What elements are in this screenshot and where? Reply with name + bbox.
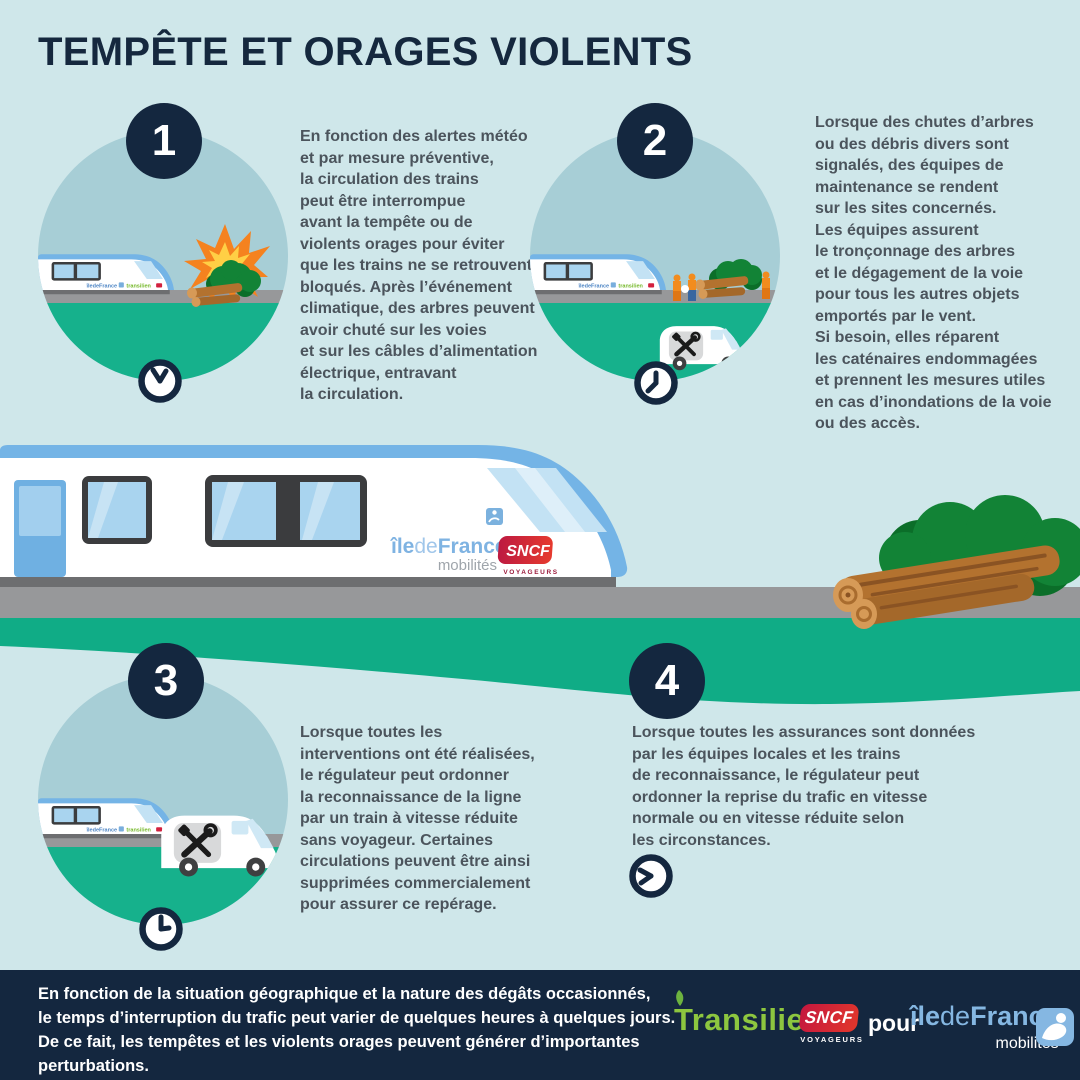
- page-title: TEMPÊTE ET ORAGES VIOLENTS: [38, 30, 693, 75]
- footer-text: En fonction de la situation géographique…: [38, 982, 675, 1078]
- leaf-icon: [671, 989, 687, 1007]
- accessibility-icon: [486, 508, 503, 525]
- clock-icon: [138, 906, 184, 952]
- train-window: [205, 475, 367, 547]
- clock-icon: [628, 853, 674, 899]
- step-2-number-badge: 2: [617, 103, 693, 179]
- train-window: [82, 476, 152, 544]
- idf-mobilites-icon: [1036, 1008, 1074, 1046]
- clock-icon: [633, 360, 679, 406]
- storm-infographic: îledeFrance transilien TEM: [0, 0, 1080, 1080]
- svg-text:VOYAGEURS: VOYAGEURS: [503, 569, 558, 576]
- step-4-number-badge: 4: [629, 643, 705, 719]
- step-1-number-badge: 1: [126, 103, 202, 179]
- idf-mobilites-logo: îledeFrance: [390, 535, 507, 558]
- sncf-voyageurs-logo: SNCF VOYAGEURS: [497, 536, 558, 576]
- svg-text:SNCF: SNCF: [506, 543, 551, 560]
- step-3-number-badge: 3: [128, 643, 204, 719]
- sncf-voyageurs-logo: SNCF VOYAGEURS: [800, 1004, 864, 1044]
- footer: En fonction de la situation géographique…: [0, 970, 1080, 1080]
- step-4-text: Lorsque toutes les assurances sont donné…: [632, 722, 975, 851]
- step-2-text: Lorsque des chutes d’arbres ou des débri…: [815, 112, 1052, 435]
- train-icon: îledeFrance mobilités SNCF VOYAGEURS: [0, 445, 627, 589]
- step-1-text: En fonction des alertes météo et par mes…: [300, 126, 537, 406]
- clock-icon: [137, 358, 183, 404]
- step-3-text: Lorsque toutes les interventions ont été…: [300, 722, 535, 916]
- idf-mobilites-sub: mobilités: [438, 557, 497, 574]
